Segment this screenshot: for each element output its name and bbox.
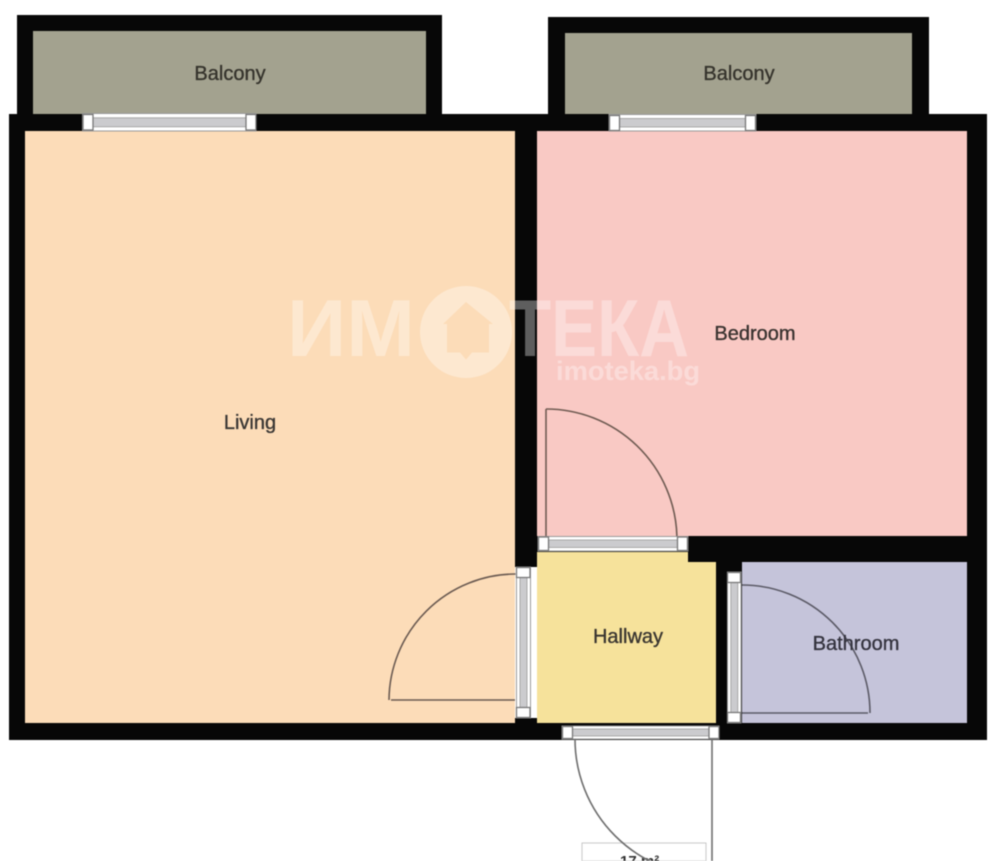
svg-text:Bathroom: Bathroom (813, 633, 900, 655)
svg-text:imoteka.bg: imoteka.bg (556, 356, 700, 386)
svg-text:Balcony: Balcony (194, 63, 265, 85)
svg-text:ИМ: ИМ (287, 284, 415, 374)
svg-text:Balcony: Balcony (703, 63, 774, 85)
svg-text:Bedroom: Bedroom (714, 323, 795, 345)
svg-text:Hallway: Hallway (593, 626, 663, 648)
svg-text:17 m²: 17 m² (620, 853, 659, 861)
svg-text:Living: Living (224, 412, 276, 434)
